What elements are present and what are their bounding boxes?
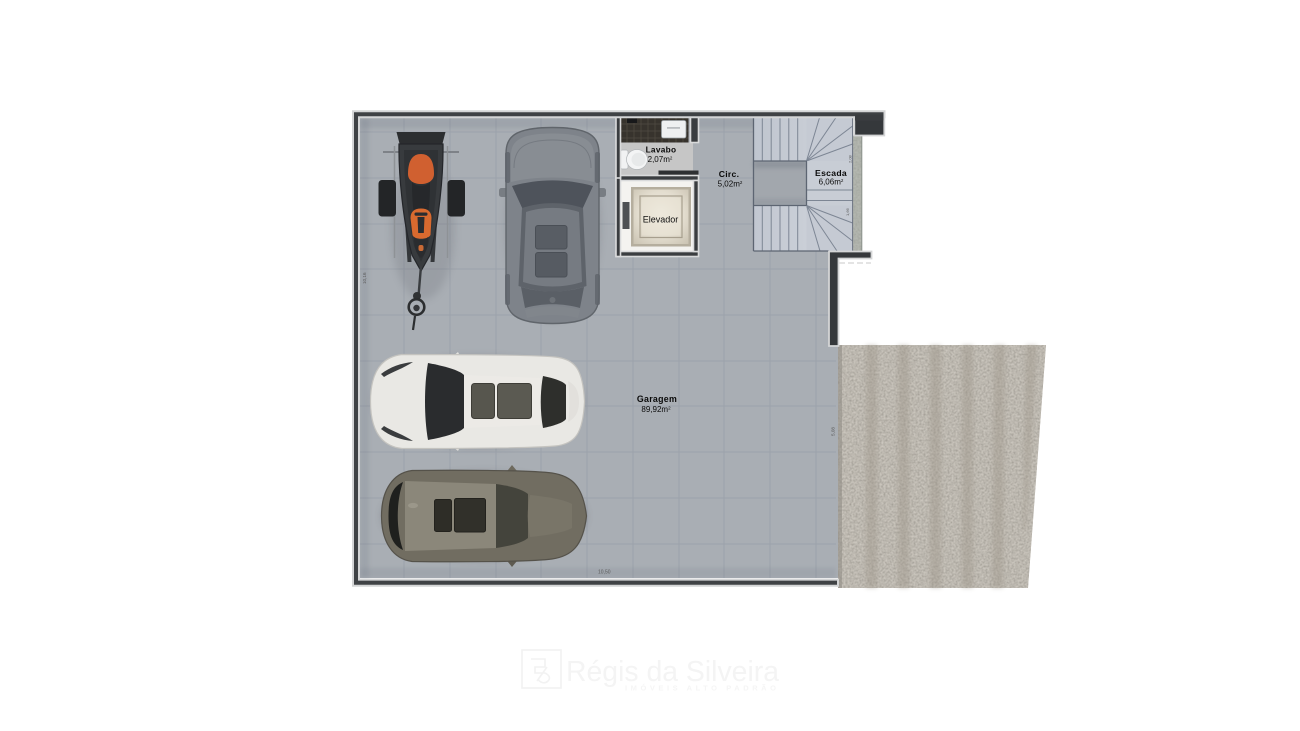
svg-text:89,92m2: 89,92m2	[641, 405, 671, 414]
svg-text:IMÓVEIS ALTO PADRÃO: IMÓVEIS ALTO PADRÃO	[625, 684, 780, 693]
svg-text:1,66: 1,66	[845, 207, 850, 216]
svg-text:Elevador: Elevador	[643, 215, 679, 225]
svg-text:5,02m2: 5,02m2	[718, 180, 743, 189]
svg-text:6,06m2: 6,06m2	[819, 178, 844, 187]
svg-text:2,08: 2,08	[848, 154, 853, 163]
svg-text:10,50: 10,50	[598, 570, 611, 576]
svg-text:Circ.: Circ.	[719, 169, 740, 179]
svg-text:Escada: Escada	[815, 168, 847, 178]
svg-text:Garagem: Garagem	[637, 394, 677, 404]
svg-text:2,07m2: 2,07m2	[648, 155, 673, 164]
svg-text:10,16: 10,16	[362, 272, 367, 284]
svg-text:Lavabo: Lavabo	[646, 145, 677, 155]
svg-text:5,08: 5,08	[831, 427, 836, 436]
